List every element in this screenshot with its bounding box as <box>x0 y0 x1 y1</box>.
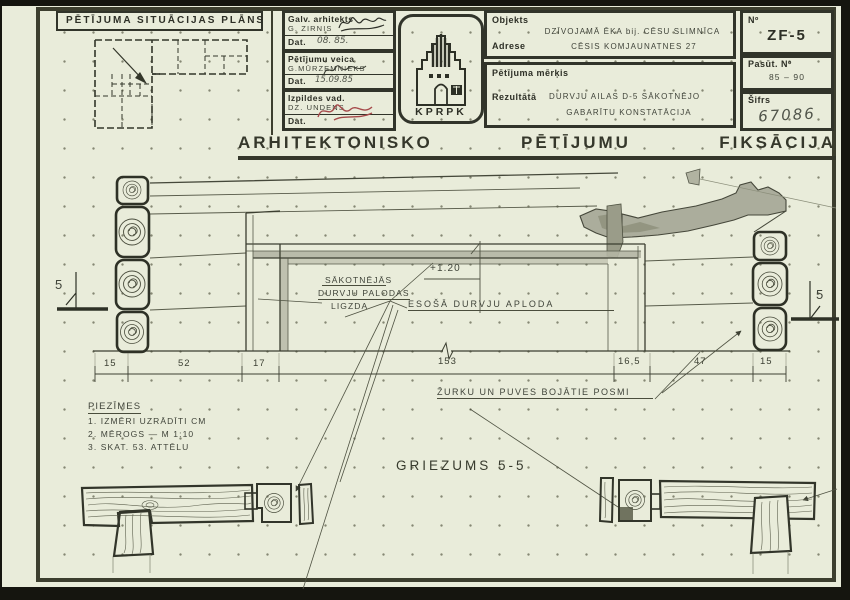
level-mark: +1.20 <box>430 263 461 274</box>
dim-16-5: 16,5 <box>618 356 641 367</box>
leader-lines <box>258 263 837 589</box>
notes-title: PIEZĪMES <box>88 401 141 414</box>
scan-edge-left <box>0 0 2 600</box>
order-label: Pasūt. Nº <box>748 59 792 69</box>
situation-plan-title: PĒTĪJUMA SITUĀCIJAS PLĀNS <box>66 15 265 26</box>
section-marker-right-label: 5 <box>816 287 824 302</box>
section-5-5-left <box>82 484 313 573</box>
dim-15a: 15 <box>104 358 117 369</box>
cipher-label: Šifrs <box>748 95 771 105</box>
result-value-line2: GABARĪTU KONSTATĀCIJA <box>549 108 709 117</box>
address-value: CĒSIS KOMJAUNATNES 27 <box>549 42 719 51</box>
section-marker-left-label: 5 <box>55 277 63 292</box>
main-title: ARHITEKTONISKO PĒTĪJUMU FIKSĀCIJA <box>238 133 836 153</box>
dim-15b: 15 <box>760 356 773 367</box>
main-title-word-1: ARHITEKTONISKO <box>238 133 433 153</box>
situation-plan-title-box: PĒTĪJUMA SITUĀCIJAS PLĀNS <box>56 11 263 31</box>
date-value: 08. 85. <box>317 36 349 46</box>
object-box: Objekts DZĪVOJAMĀ ĒKA bij. CĒSU SLIMNĪCA… <box>484 10 736 59</box>
note-2: 2. MĒROGS — M 1:10 <box>88 429 194 439</box>
signature-architect <box>336 13 388 35</box>
result-value-line1: DURVJU AILAS D-5 SĀKOTNĒJO <box>549 92 729 101</box>
dim-52: 52 <box>178 358 191 369</box>
scan-edge-top <box>0 0 850 6</box>
scan-edge-bottom <box>0 587 850 600</box>
dimension-line <box>95 366 786 382</box>
note-3: 3. SKAT. 53. ATTĒLU <box>88 442 189 452</box>
number-value: ZF-5 <box>743 27 831 44</box>
number-label: Nº <box>748 15 759 25</box>
log-wall-elevation <box>40 162 836 582</box>
note-1: 1. IZMĒRI UZRĀDĪTI CM <box>88 416 207 426</box>
socket-label-underline <box>322 285 386 286</box>
main-title-word-2: PĒTĪJUMU <box>521 133 631 153</box>
address-label: Adrese <box>492 41 526 51</box>
damage-label: ŽURKU UN PUVES BOJĀTIE POSMI <box>437 387 653 399</box>
door-frame-linework <box>246 211 645 351</box>
section-5-5-right <box>600 478 815 574</box>
dim-153: 153 <box>438 356 457 367</box>
order-box: Pasūt. Nº 85 – 90 <box>740 55 834 91</box>
date-label: Dat. <box>288 76 306 86</box>
date-label: Dat. <box>288 37 306 47</box>
signature-supervisor-red <box>314 100 378 124</box>
main-title-word-3: FIKSĀCIJA <box>719 133 836 153</box>
socket-label-line1: SĀKOTNĒJĀS <box>325 275 392 285</box>
scan-edge-right <box>841 0 850 600</box>
header-divider <box>271 9 273 135</box>
object-label: Objekts <box>492 15 529 25</box>
result-label: Rezultātā <box>492 92 537 102</box>
date-label: Dat. <box>288 116 306 126</box>
logo-text: KPRPK <box>401 106 481 118</box>
number-box: Nº ZF-5 <box>740 10 834 55</box>
drawing-sheet: PĒTĪJUMA SITUĀCIJAS PLĀNS Galv. arhitekt… <box>0 0 850 600</box>
object-value: DZĪVOJAMĀ ĒKA bij. CĒSU SLIMNĪCA <box>535 27 730 36</box>
section-title: GRIEZUMS 5-5 <box>396 458 527 473</box>
wall-course-lines <box>150 188 753 310</box>
situation-plan-linework <box>85 34 260 136</box>
purpose-box: Pētījuma mērķis Rezultātā DURVJU AILAS D… <box>484 62 736 128</box>
signature-researcher <box>320 62 372 80</box>
staff-name: G. ZIRNIS <box>288 24 333 33</box>
cipher-box: Šifrs 67086 <box>740 91 834 131</box>
socket-label-line2: DURVJU PALODAS <box>318 288 410 300</box>
log-ends-left <box>116 177 149 352</box>
dim-47: 47 <box>694 356 707 367</box>
order-value: 85 – 90 <box>743 72 831 82</box>
cipher-value: 67086 <box>743 104 832 127</box>
socket-label-line3: LIGZDA <box>331 301 368 311</box>
frame-label: ESOŠĀ DURVJU APLODA <box>408 299 614 311</box>
main-title-underline <box>238 156 836 160</box>
purpose-label: Pētījuma mērķis <box>492 68 569 78</box>
dim-17: 17 <box>253 358 266 369</box>
logo-box: KPRPK <box>398 14 484 124</box>
